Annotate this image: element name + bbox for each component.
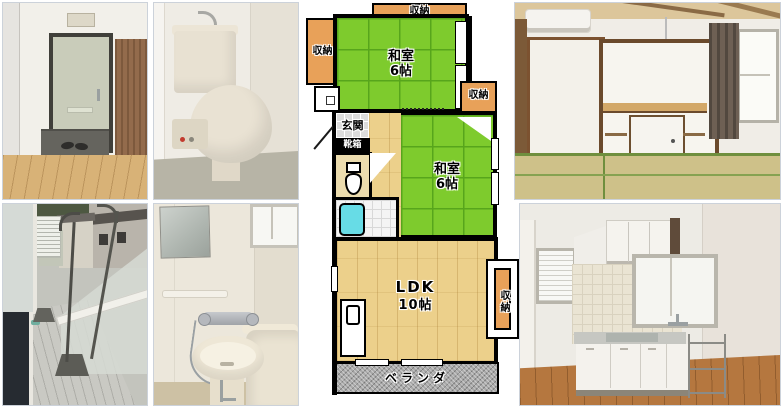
wood-floor xyxy=(3,155,147,199)
closet-recess xyxy=(455,21,467,64)
rack-shelf xyxy=(688,368,726,370)
floor-plan[interactable]: 収納 収納 和室 6帖 収納 和室 6帖 玄関 靴箱 xyxy=(300,0,522,406)
toilet-bowl-symbol xyxy=(345,173,362,195)
tatami-room-photo[interactable] xyxy=(514,2,781,200)
faucet-knob xyxy=(198,313,211,326)
mirror xyxy=(159,205,210,258)
room-size: 6帖 xyxy=(390,64,412,79)
storage-ldk: 収納 xyxy=(494,268,511,330)
room-size: 6帖 xyxy=(436,177,458,192)
window xyxy=(331,266,338,292)
metal-shelf-rack xyxy=(688,334,726,398)
cabinet-seam xyxy=(628,222,629,262)
cabinet-seam xyxy=(640,344,641,388)
faucet-symbol xyxy=(326,96,335,105)
interior-door xyxy=(3,3,20,165)
storage-label: 収納 xyxy=(496,274,509,330)
tatami-edge xyxy=(515,174,780,176)
kitchen-faucet xyxy=(676,314,679,324)
cabinet-knob xyxy=(671,139,675,143)
door-swing xyxy=(370,153,396,183)
japanese-room-1: 和室 6帖 xyxy=(333,14,469,113)
door-knob xyxy=(97,89,100,101)
toilet-tank xyxy=(174,31,236,93)
house-window xyxy=(99,234,108,245)
toilet-room xyxy=(333,152,372,202)
balcony-photo[interactable] xyxy=(2,203,148,406)
cabinet-seam xyxy=(666,344,667,388)
cabinet-counter xyxy=(603,103,707,113)
bathroom-room xyxy=(333,197,399,242)
bathroom-photo[interactable] xyxy=(153,203,299,406)
rack-shelf xyxy=(688,392,726,394)
tatami-edge xyxy=(603,156,605,200)
room-label: 和室 6帖 xyxy=(337,50,465,80)
ldk-room: LDK 10帖 xyxy=(333,237,498,365)
storage-ldk-recess: 収納 xyxy=(486,259,519,339)
window xyxy=(737,29,779,123)
toilet-tank-symbol xyxy=(346,162,361,173)
room-name: LDK xyxy=(396,278,436,296)
cabinet-handle xyxy=(648,348,656,350)
mail-slot xyxy=(67,107,93,113)
veranda: ベランダ xyxy=(335,362,499,394)
base-cabinets xyxy=(576,344,688,396)
towel-bar xyxy=(162,290,228,298)
door-swing xyxy=(457,117,491,141)
side-window xyxy=(536,248,576,304)
japanese-room-2: 和室 6帖 xyxy=(397,111,497,239)
listing-collage: 収納 収納 和室 6帖 収納 和室 6帖 玄関 靴箱 xyxy=(0,0,781,406)
kitchen-window xyxy=(632,254,718,328)
shelf xyxy=(683,133,705,136)
range-hood xyxy=(574,226,606,266)
genkan-label: 玄関 xyxy=(336,120,369,133)
shelf xyxy=(605,133,627,136)
entrance-photo[interactable] xyxy=(2,2,148,200)
room-size: 10帖 xyxy=(398,298,432,313)
room-label: 和室 6帖 xyxy=(401,163,493,193)
window-sash xyxy=(740,74,770,76)
room-name: 和室 xyxy=(388,49,414,64)
boundary-dotted-line xyxy=(402,108,444,110)
cabinet-handle xyxy=(586,348,594,350)
drain-pipe xyxy=(220,398,236,401)
rack-shelf xyxy=(688,342,726,344)
window xyxy=(401,359,443,366)
dark-window-glass xyxy=(3,312,33,405)
cabinet-seam xyxy=(610,344,611,388)
intercom-panel xyxy=(67,13,95,27)
washlet-panel xyxy=(172,119,208,149)
window xyxy=(250,204,299,248)
window-sash xyxy=(271,207,273,239)
kitchen-sink xyxy=(606,333,658,342)
tatami-floor xyxy=(515,153,780,200)
room-label: LDK 10帖 xyxy=(337,279,494,314)
sink-overflow xyxy=(220,362,234,366)
window xyxy=(491,172,499,205)
washing-machine-space xyxy=(314,86,340,112)
air-conditioner xyxy=(525,9,591,33)
kitchen-ldk-photo[interactable] xyxy=(519,203,781,406)
toilet-photo[interactable] xyxy=(153,2,299,200)
window xyxy=(491,138,499,170)
window-sash xyxy=(670,258,672,316)
unit-window xyxy=(3,204,37,314)
washlet-button xyxy=(180,137,185,142)
shower-faucet xyxy=(204,312,252,325)
cabinet-handle xyxy=(620,348,628,350)
curtain xyxy=(709,23,739,139)
washlet-button xyxy=(189,137,194,142)
storage-label: 収納 xyxy=(462,90,495,102)
room-name: 和室 xyxy=(434,162,460,177)
veranda-label: ベランダ xyxy=(337,372,497,386)
window xyxy=(355,359,389,366)
faucet-knob xyxy=(246,313,259,326)
shoe-box: 靴箱 xyxy=(335,138,370,153)
storage-right: 収納 xyxy=(460,81,497,113)
house-window xyxy=(117,232,126,243)
bathtub-symbol xyxy=(339,203,365,236)
